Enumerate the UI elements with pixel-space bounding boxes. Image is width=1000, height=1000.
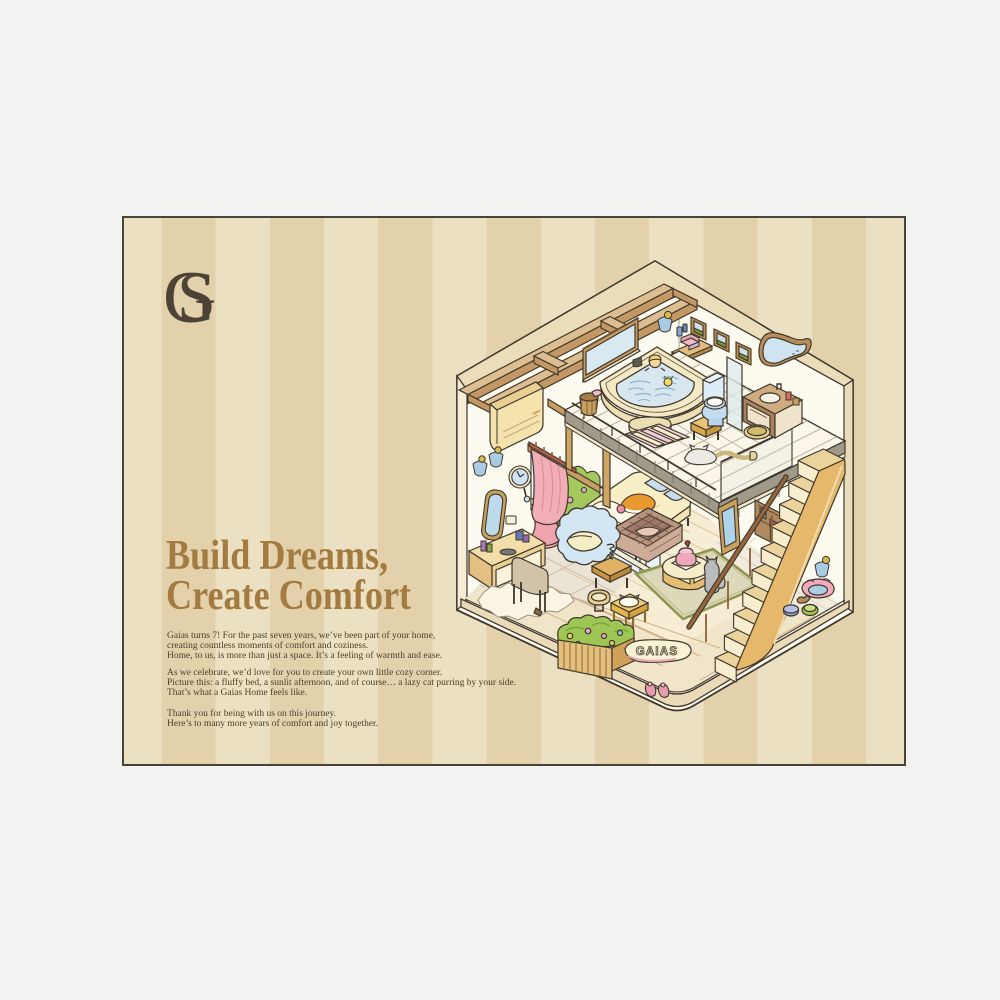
svg-text:GAIAS: GAIAS — [636, 646, 678, 658]
